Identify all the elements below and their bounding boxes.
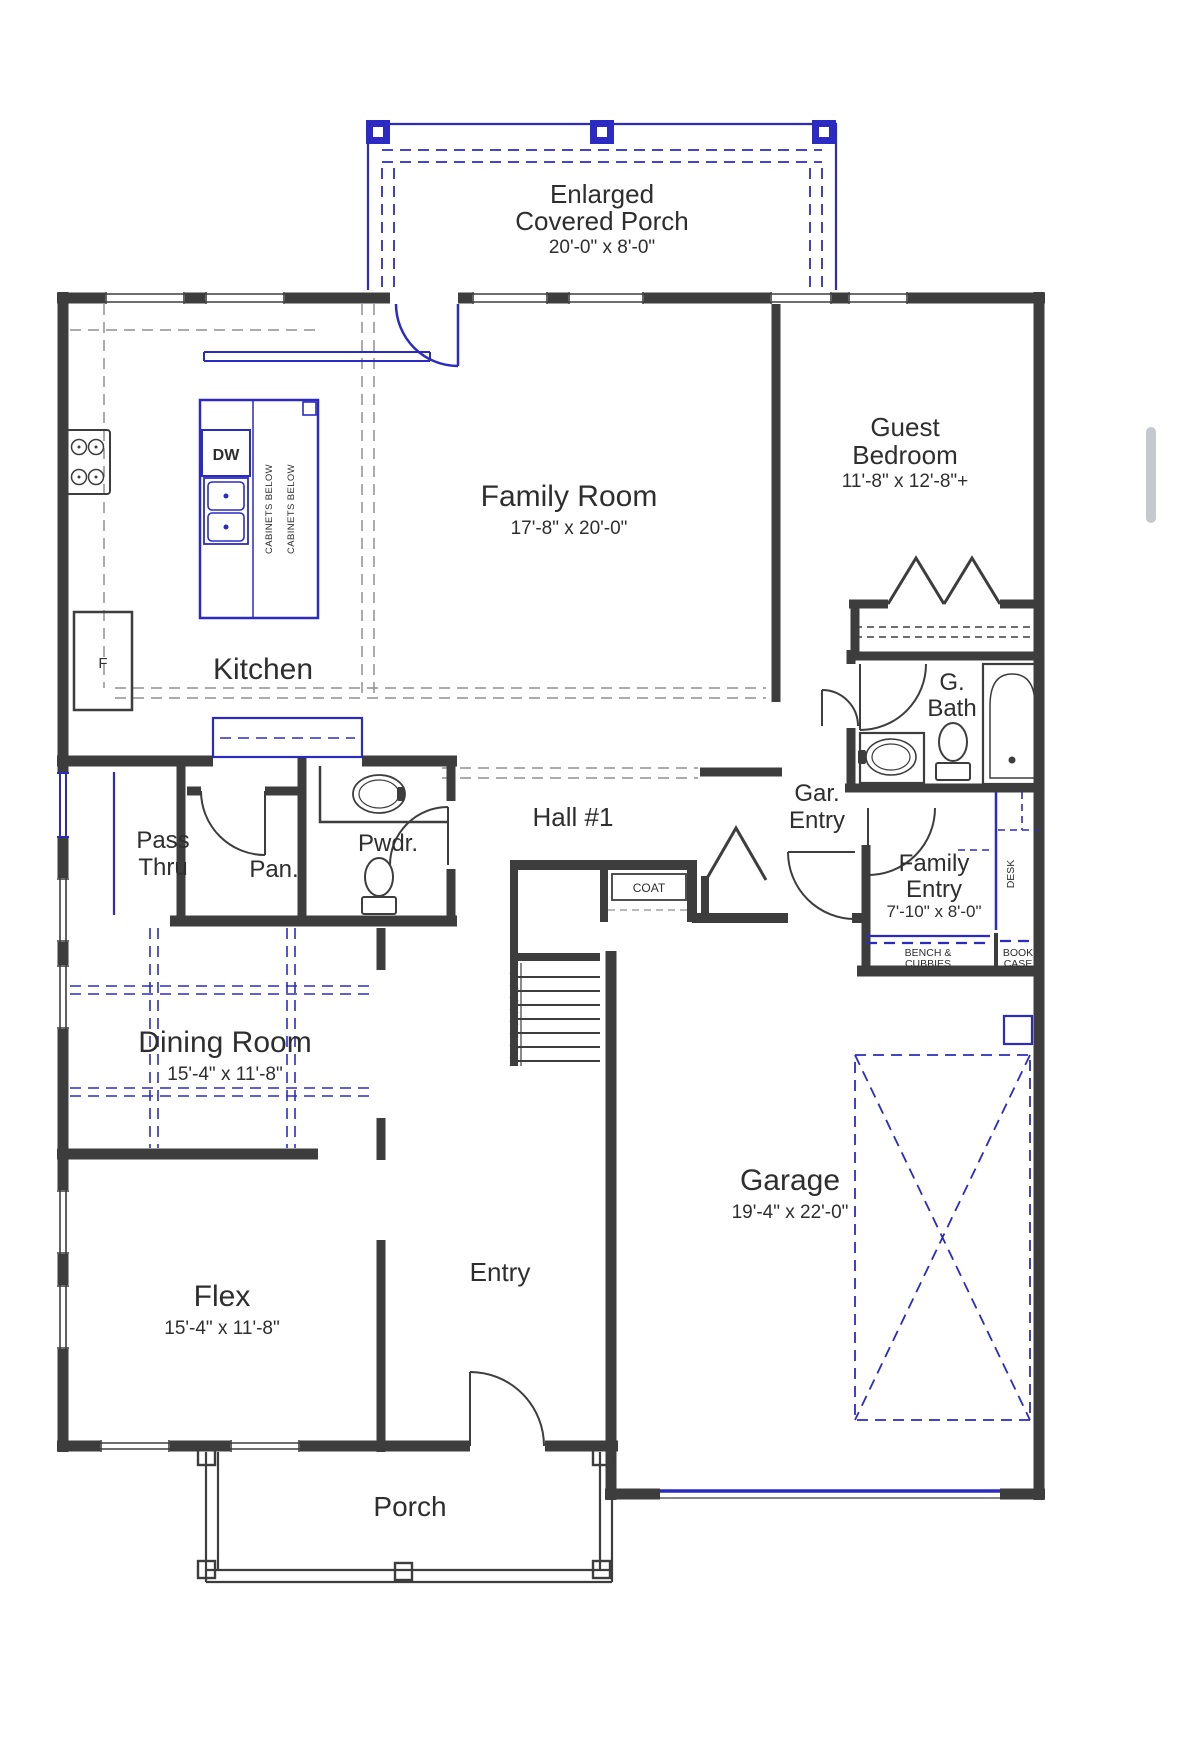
pantry-label: Pan. <box>249 856 298 883</box>
desk-label: DESK <box>1005 860 1017 889</box>
ceiling-dashed-lines <box>70 304 766 778</box>
covered-porch: Enlarged Covered Porch 20'-0" x 8'-0" <box>366 120 836 290</box>
flex-dims: 15'-4" x 11'-8" <box>164 1318 279 1339</box>
porch-top-label-1: Enlarged <box>550 179 654 209</box>
stove-icon <box>64 430 110 494</box>
family-entry-label-1: Family <box>899 850 970 877</box>
front-door-icon <box>470 1372 544 1446</box>
garage-slab-outline <box>855 1016 1032 1420</box>
closet-shelf-dashed <box>855 627 1035 637</box>
floor-plan-page: Enlarged Covered Porch 20'-0" x 8'-0" <box>0 0 1179 1745</box>
dining-room-label: Dining Room <box>138 1026 311 1059</box>
blue-window <box>54 772 72 838</box>
family-entry-label-2: Entry <box>906 876 962 903</box>
dining-room-dims: 15'-4" x 11'-8" <box>167 1064 282 1085</box>
hall-1-label: Hall #1 <box>533 802 614 832</box>
porch-label: Porch <box>373 1491 446 1522</box>
kitchen-label: Kitchen <box>213 653 313 686</box>
powder-sink-icon <box>353 775 405 813</box>
stairs-icon <box>510 963 600 1066</box>
bench-outline <box>866 936 1036 943</box>
pass-thru-label-2: Thru <box>138 854 187 881</box>
hall-closet-door-icon <box>706 828 766 880</box>
powder-toilet-icon <box>362 858 396 914</box>
bench-label-2: CUBBIES <box>905 958 951 970</box>
guest-bath-label-1: G. <box>939 669 964 696</box>
kitchen-counter-blue <box>204 352 430 361</box>
family-room-dims: 17'-8" x 20'-0" <box>511 518 628 539</box>
porch-door-icon <box>396 304 458 366</box>
garage-entry-door-icon <box>788 852 855 919</box>
bath-vanity-icon <box>858 733 924 783</box>
garage-door <box>660 1491 1000 1498</box>
garage-dims: 19'-4" x 22'-0" <box>732 1202 849 1223</box>
bath-door-icon <box>860 664 926 730</box>
pass-thru-label-1: Pass <box>136 827 189 854</box>
guest-bath-label-2: Bath <box>927 695 976 722</box>
bifold-closet-door-icon <box>888 558 1000 604</box>
powder-label: Pwdr. <box>358 830 418 857</box>
family-entry-dims: 7'-10" x 8'-0" <box>886 902 981 921</box>
garage-label: Garage <box>740 1164 840 1197</box>
garage-entry-label-2: Entry <box>789 807 845 834</box>
pass-thru-counter <box>114 718 362 915</box>
entry-label: Entry <box>470 1257 531 1287</box>
bookcase-label-2: CASE <box>1004 958 1033 970</box>
floor-plan-drawing: Enlarged Covered Porch 20'-0" x 8'-0" <box>0 0 1179 1745</box>
kitchen-island <box>200 400 318 618</box>
guest-bedroom-label-2: Bedroom <box>852 440 958 470</box>
island-note-1: CABINETS BELOW <box>264 464 275 554</box>
island-sink-icon <box>204 478 248 544</box>
fridge-label: F <box>98 655 107 672</box>
porch-top-dims: 20'-0" x 8'-0" <box>549 237 655 258</box>
porch-top-label-2: Covered Porch <box>515 206 688 236</box>
pantry-door-icon <box>201 791 265 855</box>
island-note-2: CABINETS BELOW <box>286 464 297 554</box>
page-scrollbar[interactable] <box>1146 427 1156 523</box>
family-room-label: Family Room <box>481 480 658 513</box>
bath-toilet-icon <box>936 723 970 780</box>
flex-label: Flex <box>194 1280 251 1313</box>
bathtub-icon <box>983 664 1041 784</box>
guest-bedroom-dims: 11'-8" x 12'-8"+ <box>842 471 969 492</box>
bedroom-door-icon <box>822 690 858 726</box>
dishwasher-label: DW <box>213 447 241 464</box>
guest-bedroom-label-1: Guest <box>870 412 940 442</box>
garage-entry-label-1: Gar. <box>794 780 839 807</box>
coat-label: COAT <box>633 881 666 895</box>
